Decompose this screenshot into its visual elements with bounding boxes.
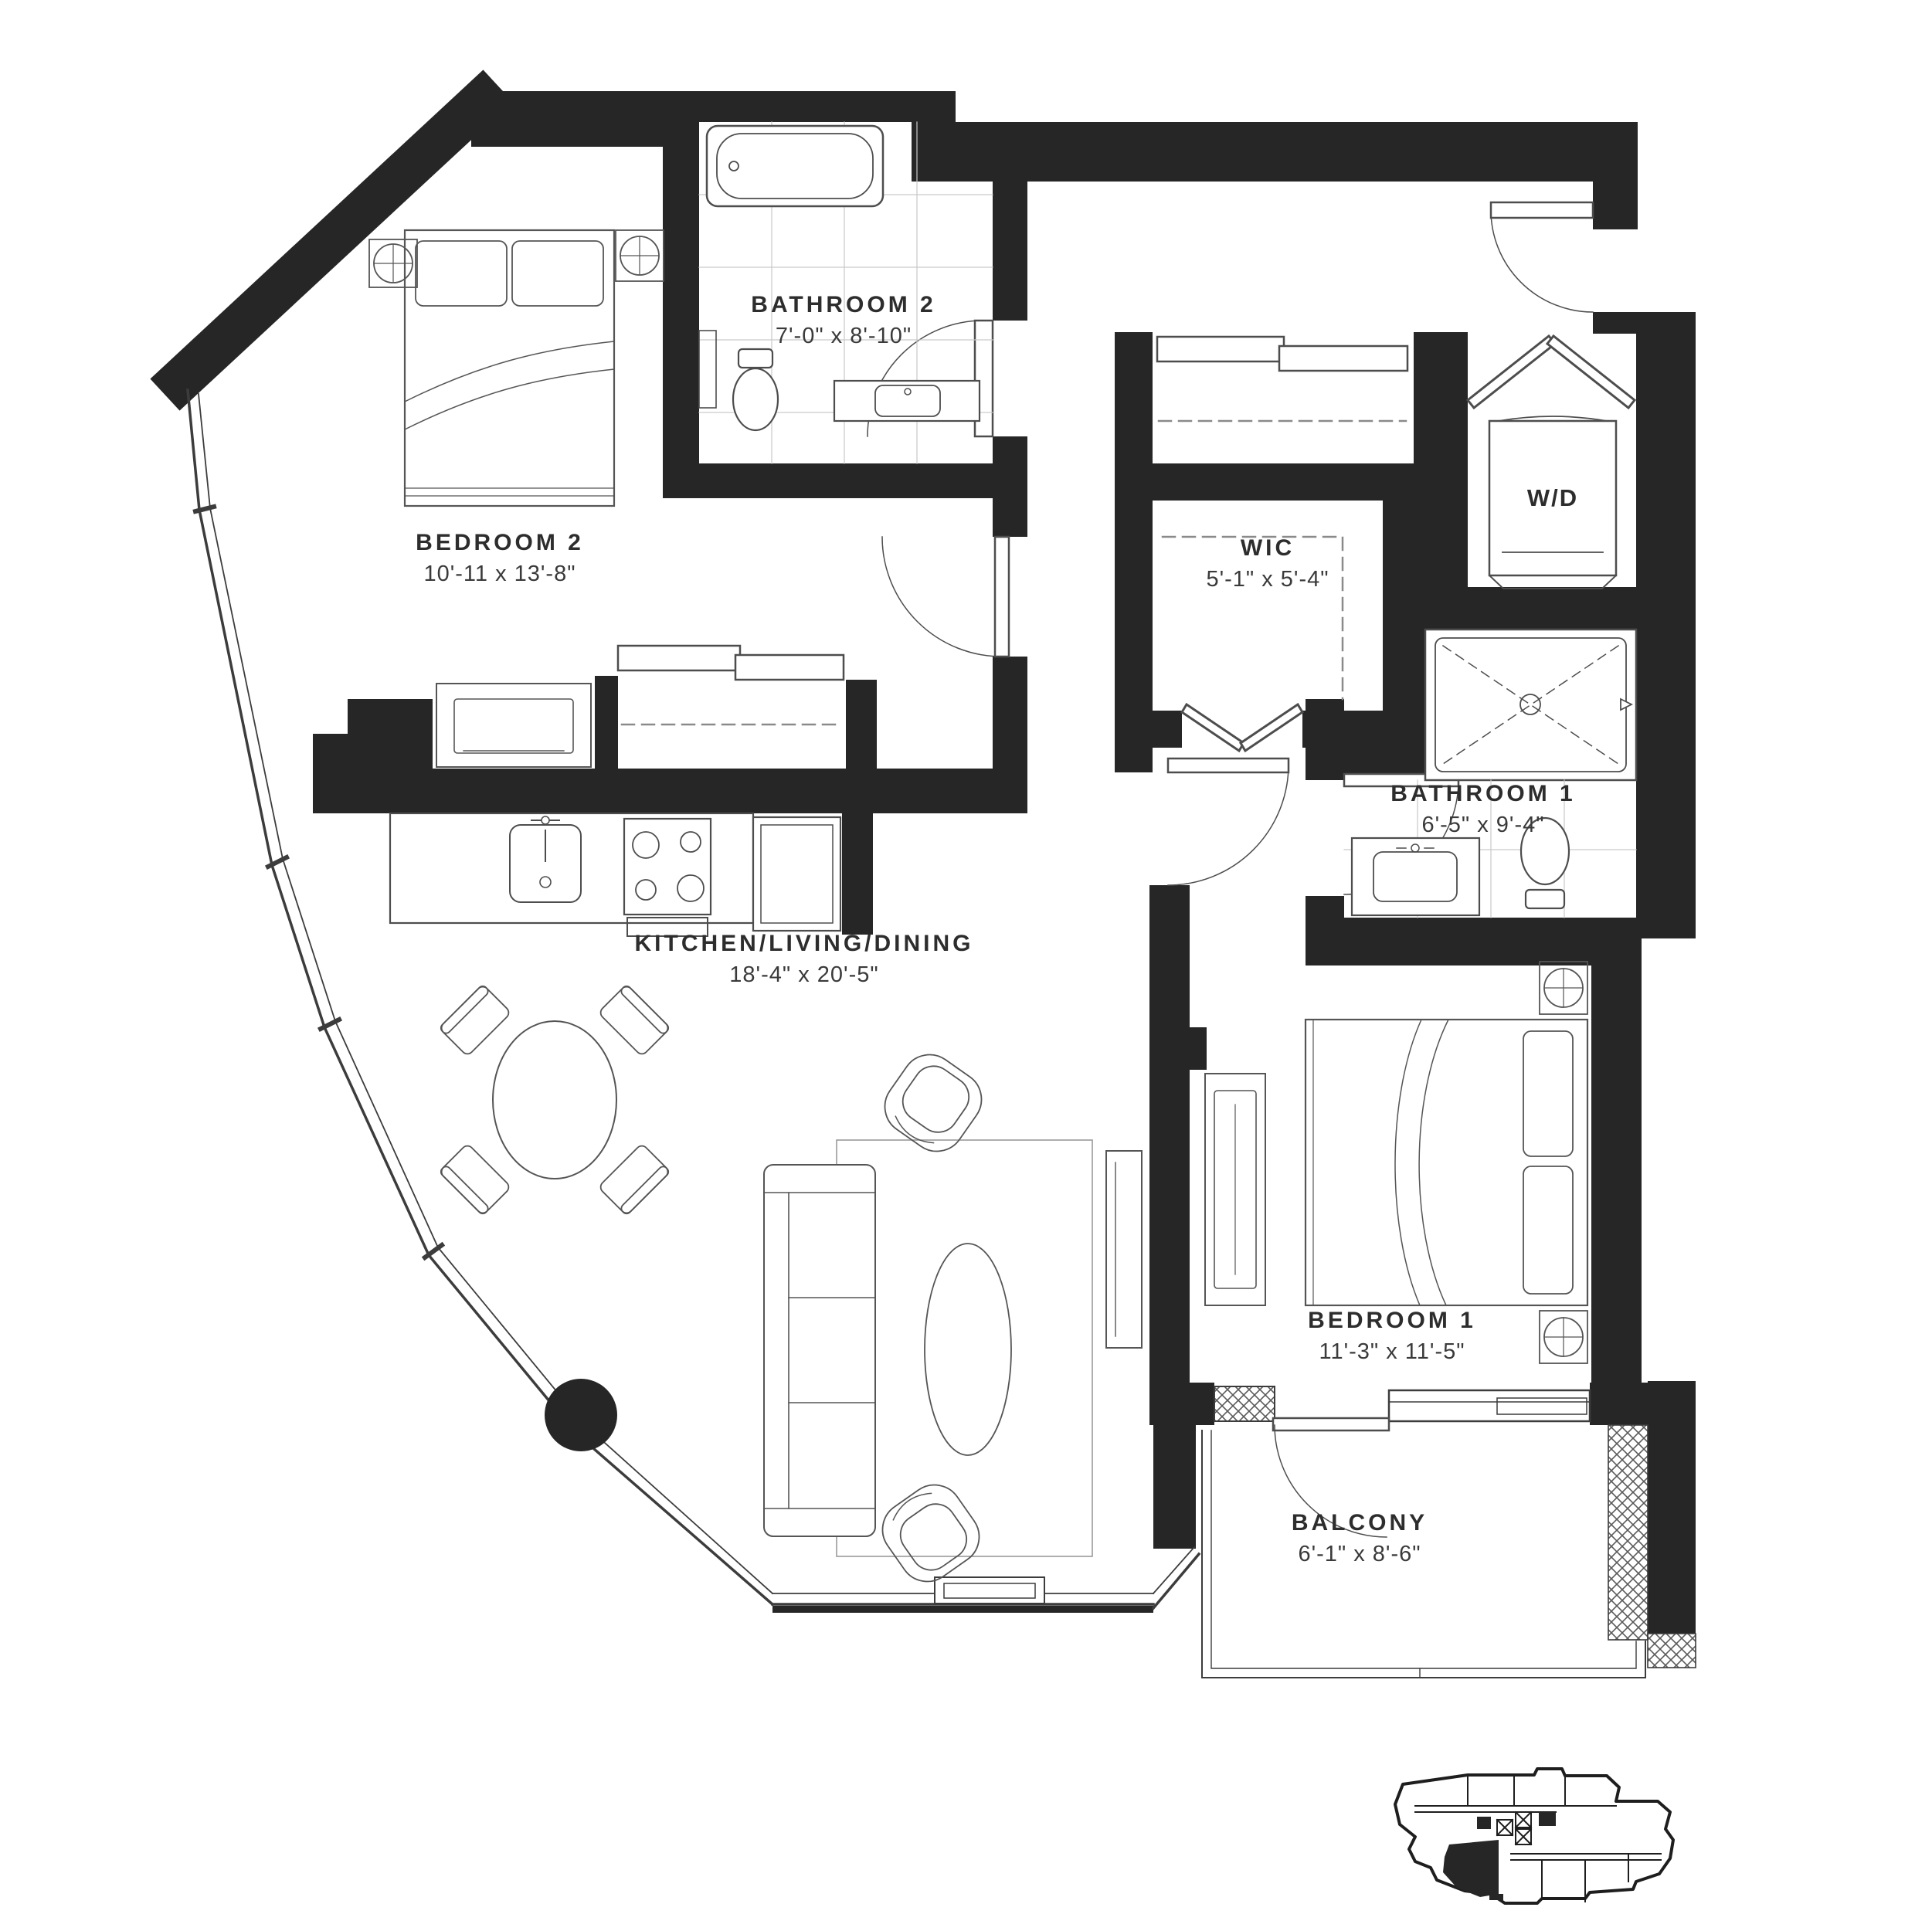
room-dims: 6'-1" x 8'-6"	[1292, 1542, 1428, 1567]
vanity-sink	[834, 381, 980, 421]
balcony-side-hatch	[1648, 1634, 1696, 1668]
nightstand	[616, 230, 664, 281]
dresser	[1205, 1074, 1265, 1305]
room-label-bedroom-1: BEDROOM 1 11'-3" x 11'-5"	[1308, 1308, 1476, 1365]
washer-dryer-bifold-doors	[1468, 336, 1635, 408]
room-dims: 18'-4" x 20'-5"	[634, 962, 973, 988]
dining-table	[493, 1021, 616, 1179]
floor-plan-page: BATHROOM 2 7'-0" x 8'-10" BEDROOM 2 10'-…	[0, 0, 1932, 1931]
room-name: BEDROOM 1	[1308, 1308, 1476, 1334]
room-label-bathroom-2: BATHROOM 2 7'-0" x 8'-10"	[751, 292, 935, 349]
bathtub	[707, 126, 883, 206]
refrigerator	[753, 817, 840, 931]
room-name: BATHROOM 1	[1390, 781, 1575, 807]
bedroom-1-window	[1214, 1386, 1590, 1421]
range-stove	[624, 819, 711, 936]
dining-chairs	[439, 984, 670, 1215]
armchair	[871, 1474, 990, 1592]
shower	[1425, 630, 1636, 780]
bedroom-2-door	[882, 537, 1009, 657]
entry-closet-sliding-doors	[1157, 337, 1407, 371]
bed	[405, 230, 614, 506]
room-dims: 10'-11 x 13'-8"	[416, 562, 584, 587]
sofa	[764, 1165, 875, 1536]
toilet	[733, 349, 778, 430]
building-outline	[1395, 1769, 1673, 1903]
room-name: BEDROOM 2	[416, 530, 584, 556]
bedroom-1-furniture	[1205, 962, 1587, 1363]
room-dims: 5'-1" x 5'-4"	[1206, 567, 1329, 592]
room-label-bathroom-1: BATHROOM 1 6'-5" x 9'-4"	[1390, 781, 1575, 838]
dresser	[436, 684, 591, 767]
armchair	[874, 1044, 992, 1162]
window-mullions	[195, 507, 586, 1435]
bedroom-2-closet-sliding-doors	[618, 646, 844, 680]
coffee-table	[925, 1244, 1011, 1455]
kitchen-fixtures	[390, 813, 840, 936]
living-furniture	[439, 984, 1142, 1592]
bedroom-2-furniture	[369, 230, 664, 767]
washer-dryer-label: W/D	[1527, 484, 1578, 512]
bathroom-2-shelf	[699, 331, 716, 408]
room-name: KITCHEN/LIVING/DINING	[634, 931, 973, 957]
room-label-kitchen-living-dining: KITCHEN/LIVING/DINING 18'-4" x 20'-5"	[634, 931, 973, 988]
key-plan	[1395, 1769, 1673, 1903]
key-plan-unit-highlight	[1443, 1840, 1499, 1897]
balcony-side-hatch	[1608, 1425, 1648, 1640]
balcony	[1202, 1425, 1696, 1678]
nightstand	[1540, 1311, 1587, 1363]
room-dims: 11'-3" x 11'-5"	[1308, 1339, 1476, 1365]
structural-column	[545, 1379, 617, 1451]
bedroom-hall-door	[1168, 758, 1289, 885]
room-name: WIC	[1206, 535, 1329, 562]
wic-bifold-doors	[1182, 704, 1302, 751]
room-dims: 6'-5" x 9'-4"	[1390, 813, 1575, 838]
tv-console	[1106, 1151, 1142, 1348]
nightstand	[1540, 962, 1587, 1014]
room-label-balcony: BALCONY 6'-1" x 8'-6"	[1292, 1510, 1428, 1567]
room-name: BATHROOM 2	[751, 292, 935, 318]
room-label-bedroom-2: BEDROOM 2 10'-11 x 13'-8"	[416, 530, 584, 587]
room-dims: 7'-0" x 8'-10"	[751, 324, 935, 349]
room-name: BALCONY	[1292, 1510, 1428, 1536]
vanity-sink	[1352, 838, 1479, 915]
entry-door	[1491, 202, 1593, 312]
room-label-wic: WIC 5'-1" x 5'-4"	[1206, 535, 1329, 592]
bed	[1306, 1020, 1587, 1305]
kitchen-sink	[510, 816, 581, 902]
